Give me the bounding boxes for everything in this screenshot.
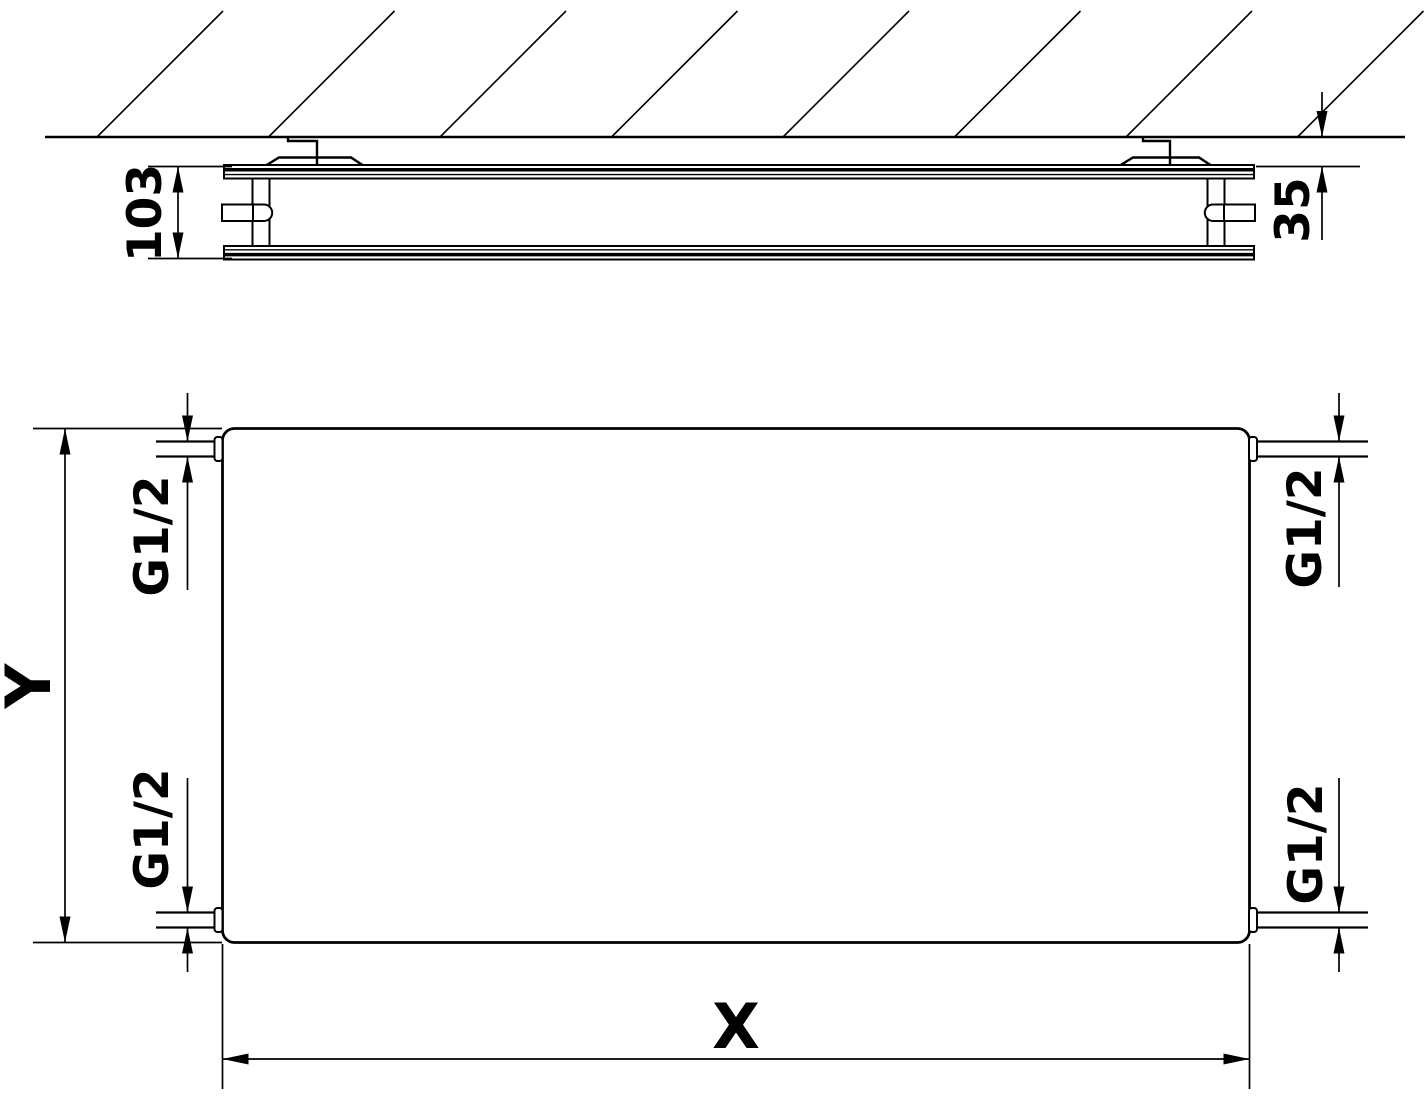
arrowhead-left [223,1054,249,1065]
arrowhead-down [173,233,184,259]
dimension-depth-label: 103 [118,164,173,262]
dimension-width: X [223,944,1250,1089]
arrowhead-up [173,167,184,193]
dimension-connection-top-right: G1/2 [1278,393,1345,589]
connection-stub-bottom-right [1249,908,1368,932]
front-view: G1/2 G1/2 G1/2 G1/2 [0,393,1368,1089]
connection-stub-top-left [156,437,223,461]
bracket-hook [288,138,317,166]
arrowhead-up [1334,457,1345,483]
radiator-front-panel [223,429,1250,943]
arrowhead-down [1334,887,1345,913]
dimension-width-label: X [712,990,760,1063]
dimension-height: Y [0,429,222,943]
dimension-connection-bottom-right: G1/2 [1279,778,1345,972]
stub-flange [215,908,223,932]
connection-size-label-top-left: G1/2 [125,475,180,596]
nipple-cap [253,205,272,222]
arrowhead-up [60,429,71,455]
valve-nipple-right [1205,205,1255,222]
connection-size-label-bottom-right: G1/2 [1279,783,1334,904]
connection-size-label-top-right: G1/2 [1278,467,1333,588]
valve-nipple-left [222,205,272,222]
panel-back-slab [224,246,1254,260]
nipple-body [222,205,253,222]
side-view: 103 35 [45,11,1424,262]
technical-drawing: 103 35 [0,0,1427,1101]
wall-hatching [97,11,1424,137]
stub-flange [1249,908,1257,932]
stub-flange [1249,437,1257,461]
stub-flange [215,437,223,461]
arrowhead-down [1334,416,1345,442]
arrowhead-up [182,457,193,483]
connection-stub-top-right [1249,437,1368,461]
dimension-connection-top-left: G1/2 [125,393,193,597]
dimension-wall-offset: 35 [1256,92,1360,243]
dimension-wall-offset-label: 35 [1266,177,1321,242]
bracket-hook [1143,138,1170,166]
connection-stub-bottom-left [156,908,223,932]
panel-front-slab [224,165,1254,179]
arrowhead-up [182,928,193,954]
radiator-side-profile [222,165,1255,260]
arrowhead-down [60,917,71,943]
mounting-bracket-right [1106,138,1225,167]
dimension-depth: 103 [118,164,232,262]
arrowhead-down [182,887,193,913]
connection-size-label-bottom-left: G1/2 [125,768,180,889]
nipple-body [1224,205,1255,222]
mounting-bracket-left [252,138,377,167]
arrowhead-right [1224,1054,1250,1065]
drawing-canvas: 103 35 [0,0,1427,1101]
dimension-connection-bottom-left: G1/2 [125,768,193,972]
arrowhead-up [1334,928,1345,954]
dimension-height-label: Y [0,662,65,709]
nipple-cap [1205,205,1224,222]
arrowhead-down [1317,111,1328,137]
